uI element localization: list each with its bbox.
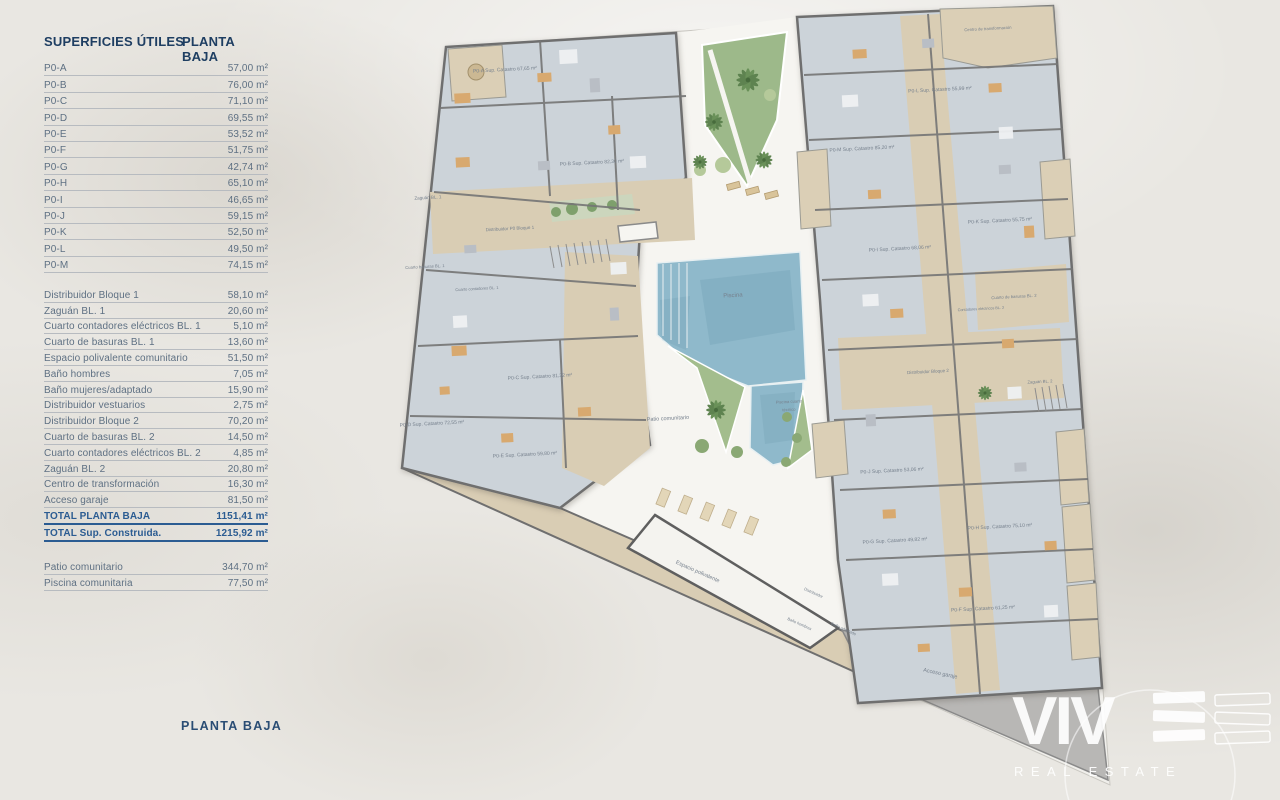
logo-e-outline-bars <box>1215 693 1270 744</box>
table-row: Cuarto contadores eléctricos BL. 15,10 m… <box>44 319 268 335</box>
table-row: Piscina comunitaria77,50 m² <box>44 575 268 591</box>
row-label: Cuarto de basuras BL. 2 <box>44 432 155 443</box>
row-value: 7,05 m² <box>233 369 268 380</box>
row-value: 20,80 m² <box>228 464 268 475</box>
table-header: SUPERFICIES ÚTILES PLANTA BAJA <box>44 34 268 60</box>
row-label: Acceso garaje <box>44 495 109 506</box>
row-label: TOTAL Sup. Construida. <box>44 528 161 539</box>
planter-box <box>618 222 658 242</box>
table-row: P0-C71,10 m² <box>44 93 268 109</box>
plan-room-label: técnico <box>782 407 796 413</box>
floor-plan: P0-A Sup. Catastro 67,65 m²P0-B Sup. Cat… <box>380 0 1280 800</box>
table-row: P0-B76,00 m² <box>44 76 268 92</box>
apartments-table: P0-A57,00 m²P0-B76,00 m²P0-C71,10 m²P0-D… <box>44 60 268 273</box>
row-label: Patio comunitario <box>44 562 123 573</box>
table-row: P0-F51,75 m² <box>44 142 268 158</box>
row-value: 74,15 m² <box>228 260 268 271</box>
row-label: P0-I <box>44 195 63 206</box>
surface-table-panel: SUPERFICIES ÚTILES PLANTA BAJA P0-A57,00… <box>44 34 268 591</box>
row-value: 46,65 m² <box>228 195 268 206</box>
row-value: 76,00 m² <box>228 80 268 91</box>
row-value: 77,50 m² <box>228 578 268 589</box>
common-areas-table: Distribuidor Bloque 158,10 m²Zaguán BL. … <box>44 287 268 542</box>
row-label: P0-E <box>44 129 67 140</box>
row-label: Zaguán BL. 1 <box>44 306 105 317</box>
row-label: Zaguán BL. 2 <box>44 464 105 475</box>
table-header-planta-baja: PLANTA BAJA <box>182 34 268 64</box>
table-row: Distribuidor vestuarios2,75 m² <box>44 398 268 414</box>
table-row: P0-G42,74 m² <box>44 158 268 174</box>
floorplan-page: { "tables": { "header": { "col1": "SUPER… <box>0 0 1280 800</box>
outdoor-areas-table: Patio comunitario344,70 m²Piscina comuni… <box>44 559 268 591</box>
row-value: 51,75 m² <box>228 145 268 156</box>
row-value: 13,60 m² <box>228 337 268 348</box>
table-row: Patio comunitario344,70 m² <box>44 559 268 575</box>
table-row: TOTAL PLANTA BAJA1151,41 m² <box>44 508 268 525</box>
table-row: Cuarto de basuras BL. 113,60 m² <box>44 334 268 350</box>
plan-room-label: Piscina <box>723 292 743 299</box>
table-row: TOTAL Sup. Construida.1215,92 m² <box>44 525 268 542</box>
row-value: 58,10 m² <box>228 290 268 301</box>
row-value: 20,60 m² <box>228 306 268 317</box>
row-value: 4,85 m² <box>233 448 268 459</box>
row-value: 57,00 m² <box>228 63 268 74</box>
row-label: Distribuidor vestuarios <box>44 400 145 411</box>
row-value: 51,50 m² <box>228 353 268 364</box>
floor-title: PLANTA BAJA <box>181 719 282 733</box>
row-value: 2,75 m² <box>233 400 268 411</box>
row-value: 65,10 m² <box>228 178 268 189</box>
table-row: P0-L49,50 m² <box>44 240 268 256</box>
table-row: P0-D69,55 m² <box>44 109 268 125</box>
row-label: Cuarto de basuras BL. 1 <box>44 337 155 348</box>
table-row: Distribuidor Bloque 270,20 m² <box>44 413 268 429</box>
table-row: Zaguán BL. 220,80 m² <box>44 461 268 477</box>
logo-e-bars <box>1153 691 1205 742</box>
table-row: Acceso garaje81,50 m² <box>44 492 268 508</box>
row-value: 71,10 m² <box>228 96 268 107</box>
row-label: P0-K <box>44 227 67 238</box>
table-row: Espacio polivalente comunitario51,50 m² <box>44 350 268 366</box>
row-label: TOTAL PLANTA BAJA <box>44 511 150 522</box>
table-row: P0-M74,15 m² <box>44 257 268 273</box>
row-label: P0-B <box>44 80 67 91</box>
row-label: P0-G <box>44 162 68 173</box>
row-value: 5,10 m² <box>233 321 268 332</box>
row-label: P0-H <box>44 178 67 189</box>
row-value: 53,52 m² <box>228 129 268 140</box>
row-value: 42,74 m² <box>228 162 268 173</box>
row-label: P0-A <box>44 63 67 74</box>
row-value: 69,55 m² <box>228 113 268 124</box>
row-label: Espacio polivalente comunitario <box>44 353 188 364</box>
logo-letters: VIV <box>1012 683 1115 759</box>
row-label: Baño mujeres/adaptado <box>44 385 152 396</box>
row-label: Centro de transformación <box>44 479 159 490</box>
row-label: Cuarto contadores eléctricos BL. 1 <box>44 321 201 332</box>
row-value: 52,50 m² <box>228 227 268 238</box>
row-label: P0-J <box>44 211 65 222</box>
row-value: 81,50 m² <box>228 495 268 506</box>
table-row: P0-H65,10 m² <box>44 175 268 191</box>
row-label: P0-L <box>44 244 66 255</box>
row-value: 1151,41 m² <box>216 511 268 522</box>
row-value: 70,20 m² <box>228 416 268 427</box>
table-row: Centro de transformación16,30 m² <box>44 477 268 493</box>
row-label: Distribuidor Bloque 2 <box>44 416 139 427</box>
row-label: P0-F <box>44 145 66 156</box>
table-row: Zaguán BL. 120,60 m² <box>44 303 268 319</box>
table-row: Baño hombres7,05 m² <box>44 366 268 382</box>
table-row: Baño mujeres/adaptado15,90 m² <box>44 382 268 398</box>
row-label: Distribuidor Bloque 1 <box>44 290 139 301</box>
row-value: 15,90 m² <box>228 385 268 396</box>
row-value: 1215,92 m² <box>216 528 268 539</box>
row-label: P0-D <box>44 113 67 124</box>
row-value: 59,15 m² <box>228 211 268 222</box>
table-row: Cuarto de basuras BL. 214,50 m² <box>44 429 268 445</box>
row-value: 16,30 m² <box>228 479 268 490</box>
logo-tagline: REAL ESTATE <box>1014 764 1182 779</box>
row-value: 344,70 m² <box>222 562 268 573</box>
row-label: Piscina comunitaria <box>44 578 133 589</box>
table-row: Cuarto contadores eléctricos BL. 24,85 m… <box>44 445 268 461</box>
table-row: Distribuidor Bloque 158,10 m² <box>44 287 268 303</box>
table-row: P0-I46,65 m² <box>44 191 268 207</box>
table-row: P0-J59,15 m² <box>44 208 268 224</box>
row-value: 14,50 m² <box>228 432 268 443</box>
table-header-superficies: SUPERFICIES ÚTILES <box>44 34 184 49</box>
row-label: P0-C <box>44 96 67 107</box>
vive-logo: VIV REAL ESTATE <box>1012 683 1270 779</box>
row-label: P0-M <box>44 260 68 271</box>
row-value: 49,50 m² <box>228 244 268 255</box>
row-label: Cuarto contadores eléctricos BL. 2 <box>44 448 201 459</box>
row-label: Baño hombres <box>44 369 110 380</box>
table-row: P0-K52,50 m² <box>44 224 268 240</box>
table-row: P0-E53,52 m² <box>44 126 268 142</box>
